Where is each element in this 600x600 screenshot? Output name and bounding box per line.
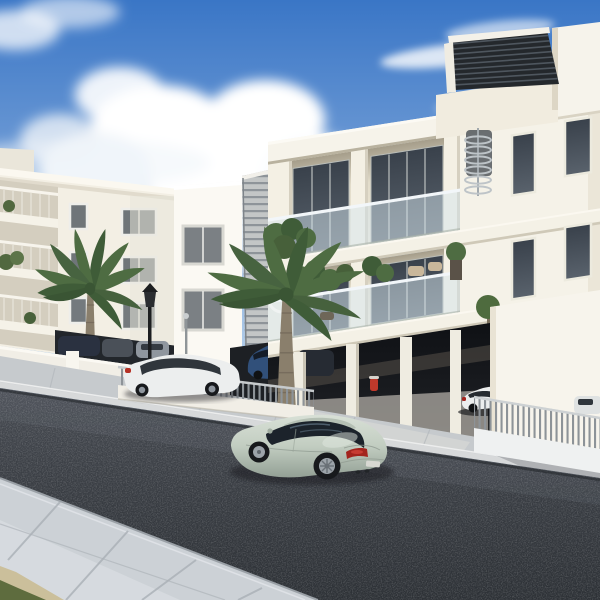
- roof-pergola: [444, 27, 559, 93]
- parked-car-gray: [102, 339, 133, 357]
- planter-pot: [450, 260, 462, 280]
- coupe-mirror: [267, 428, 272, 433]
- left-building-balconies: [0, 180, 58, 352]
- parked-car-right-edge: [574, 396, 600, 414]
- parked-hatchback: [124, 354, 240, 402]
- coupe-rear-wheel: [314, 453, 341, 480]
- hatchback-taillight: [125, 368, 131, 373]
- roof-volume-right: [552, 22, 600, 110]
- architectural-render: [0, 0, 600, 600]
- coupe-front-wheel: [249, 442, 270, 463]
- fire-hydrant: [369, 376, 379, 391]
